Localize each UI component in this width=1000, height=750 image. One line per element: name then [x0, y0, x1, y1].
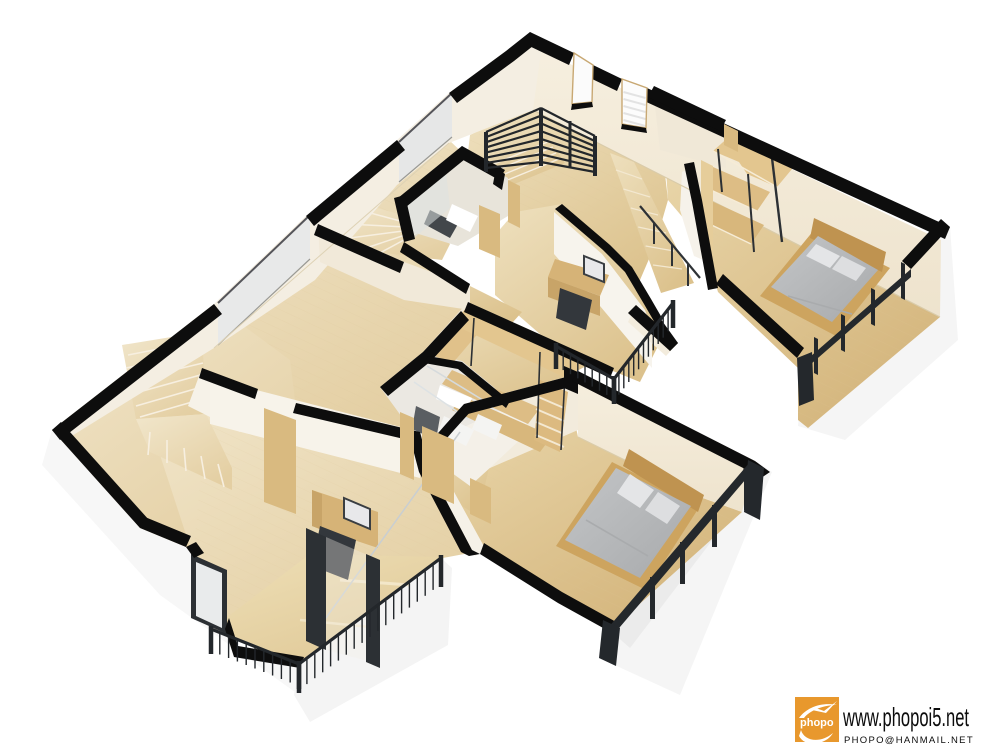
- svg-text:phopo: phopo: [800, 717, 834, 729]
- svg-text:PHOPO@HANMAIL.NET: PHOPO@HANMAIL.NET: [844, 735, 974, 746]
- svg-text:www.phopoi5.net: www.phopoi5.net: [842, 702, 969, 732]
